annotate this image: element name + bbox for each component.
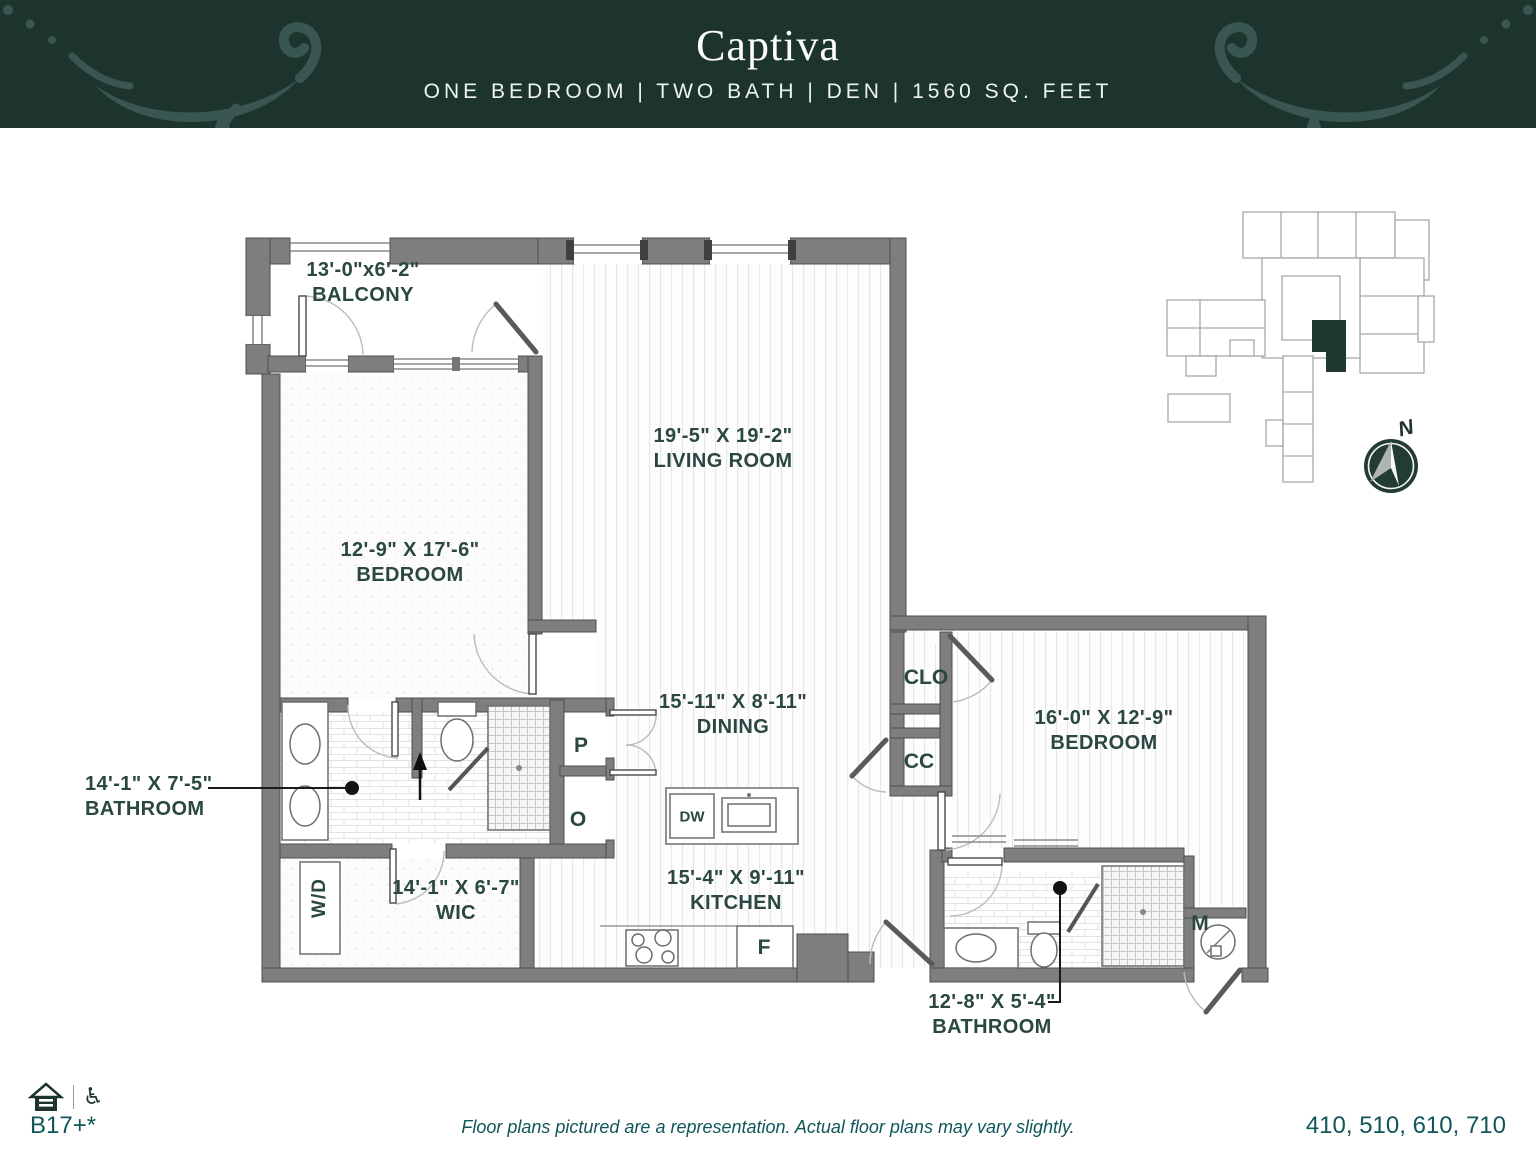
dishwasher-label: DW	[680, 809, 705, 826]
closet-label: CLO	[904, 666, 948, 690]
oven-label: O	[570, 808, 586, 832]
bedroom-right-label: 16'-0" X 12'-9" BEDROOM	[1035, 706, 1174, 756]
kitchen-label: 15'-4" X 9'-11" KITCHEN	[667, 866, 805, 916]
footer-icons: ♿	[30, 1082, 104, 1112]
icon-separator	[73, 1085, 74, 1109]
unit-numbers: 410, 510, 610, 710	[1306, 1112, 1506, 1140]
wic-name: WIC	[392, 901, 519, 926]
kitchen-dims: 15'-4" X 9'-11"	[667, 866, 805, 891]
kitchen-name: KITCHEN	[667, 891, 805, 916]
bathroom-right-name: BATHROOM	[928, 1015, 1055, 1040]
dining-dims: 15'-11" X 8'-11"	[659, 690, 807, 715]
bathroom-right-label: 12'-8" X 5'-4" BATHROOM	[928, 990, 1055, 1040]
bedroom-right-name: BEDROOM	[1035, 731, 1174, 756]
site-plan-highlighted-unit	[1312, 320, 1346, 372]
coat-closet-label: CC	[904, 750, 934, 774]
ornament-flourish-left	[0, 0, 360, 128]
floor-plan-sheet: Captiva ONE BEDROOM | TWO BATH | DEN | 1…	[0, 0, 1536, 1152]
bathroom-left-name: BATHROOM	[85, 797, 212, 822]
balcony-label: 13'-0"x6'-2" BALCONY	[306, 258, 419, 308]
dining-label: 15'-11" X 8'-11" DINING	[659, 690, 807, 740]
washer-dryer-label: W/D	[309, 878, 331, 918]
living-room-label: 19'-5" X 19'-2" LIVING ROOM	[654, 424, 793, 474]
bathroom-left-label: 14'-1" X 7'-5" BATHROOM	[85, 772, 212, 822]
bathroom-right-dims: 12'-8" X 5'-4"	[928, 990, 1055, 1015]
wic-dims: 14'-1" X 6'-7"	[392, 876, 519, 901]
refrigerator-label: F	[758, 936, 771, 960]
wic-label: 14'-1" X 6'-7" WIC	[392, 876, 519, 926]
dining-name: DINING	[659, 715, 807, 740]
bedroom-left-name: BEDROOM	[341, 563, 480, 588]
floor-plan-graphic	[0, 0, 1536, 1152]
living-room-name: LIVING ROOM	[654, 449, 793, 474]
bathroom-left-dims: 14'-1" X 7'-5"	[85, 772, 212, 797]
living-room-dims: 19'-5" X 19'-2"	[654, 424, 793, 449]
compass-icon	[1364, 439, 1418, 493]
balcony-name: BALCONY	[306, 283, 419, 308]
ornament-flourish-right	[1176, 0, 1536, 128]
accessible-icon: ♿	[83, 1084, 104, 1110]
bedroom-left-label: 12'-9" X 17'-6" BEDROOM	[341, 538, 480, 588]
header-banner: Captiva ONE BEDROOM | TWO BATH | DEN | 1…	[0, 0, 1536, 128]
balcony-dims: 13'-0"x6'-2"	[306, 258, 419, 283]
pantry-label: P	[574, 734, 588, 758]
bedroom-right-dims: 16'-0" X 12'-9"	[1035, 706, 1174, 731]
mechanical-label: M	[1191, 912, 1209, 936]
bedroom-left-dims: 12'-9" X 17'-6"	[341, 538, 480, 563]
